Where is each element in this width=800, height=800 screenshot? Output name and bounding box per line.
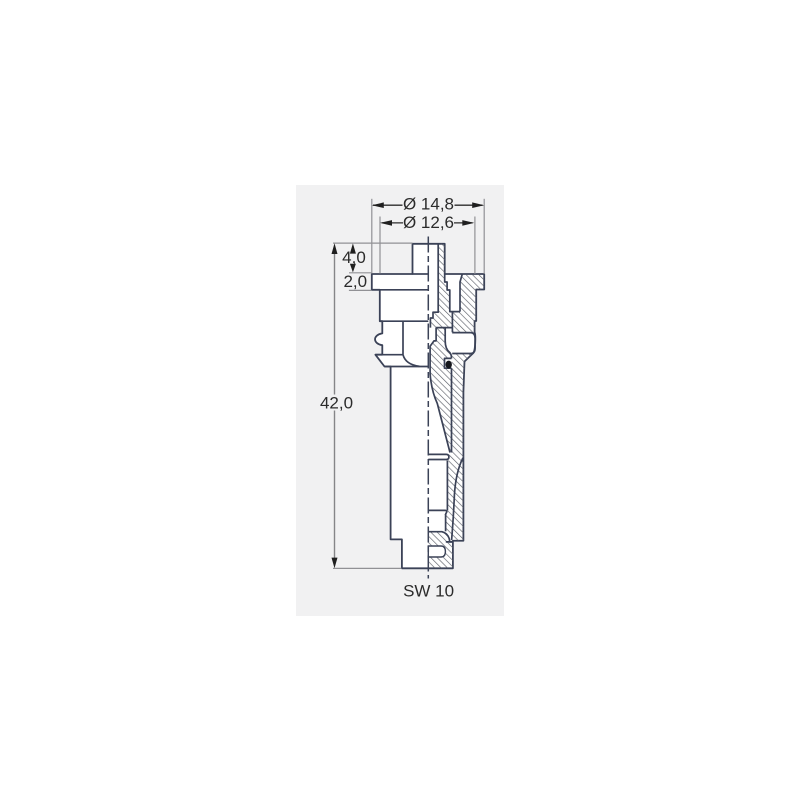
svg-text:4,0: 4,0: [342, 248, 366, 267]
svg-text:Ø 12,6: Ø 12,6: [403, 213, 454, 232]
svg-text:Ø 14,8: Ø 14,8: [403, 194, 454, 213]
svg-text:2,0: 2,0: [343, 272, 367, 291]
svg-text:42,0: 42,0: [320, 394, 353, 413]
svg-text:SW 10: SW 10: [403, 581, 454, 600]
